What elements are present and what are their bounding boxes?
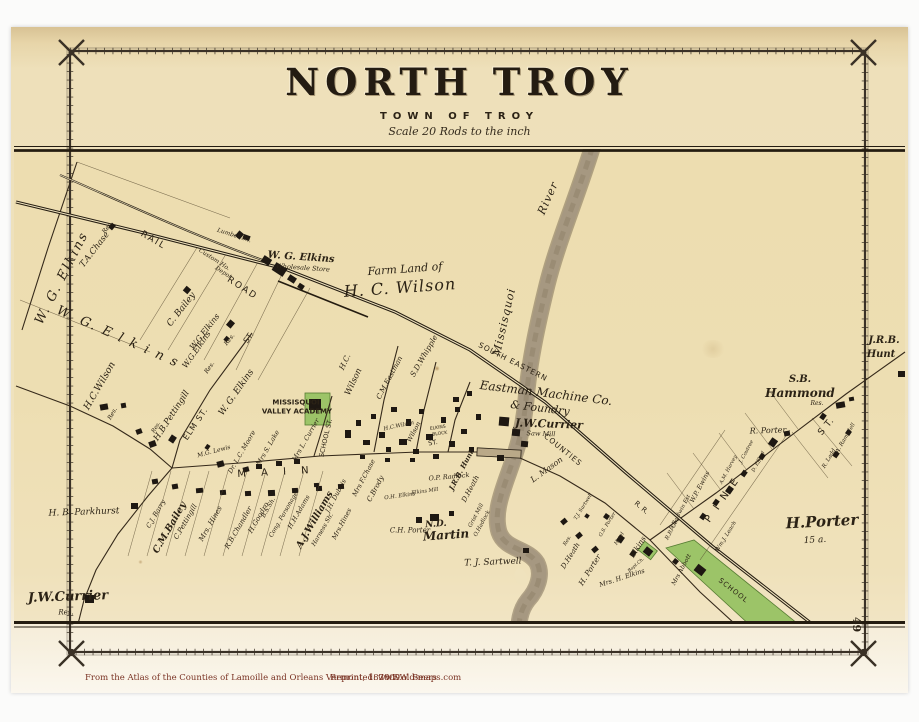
map-subtitle: TOWN OF TROY (0, 111, 919, 122)
caption-website: www.old-maps.com (378, 673, 461, 683)
paper-stain (138, 560, 143, 564)
map-title: NORTH TROY (0, 60, 919, 104)
title-block: NORTH TROY TOWN OF TROY Scale 20 Rods to… (0, 60, 919, 138)
plate-number: 49 (850, 617, 863, 632)
paper-stain (700, 340, 726, 358)
scanned-map-page: { "title": { "main": "NORTH TROY", "sub"… (0, 0, 919, 722)
map-scale-note: Scale 20 Rods to the inch (0, 125, 919, 138)
paper-stain (434, 366, 440, 371)
map-area-tint (14, 151, 905, 622)
